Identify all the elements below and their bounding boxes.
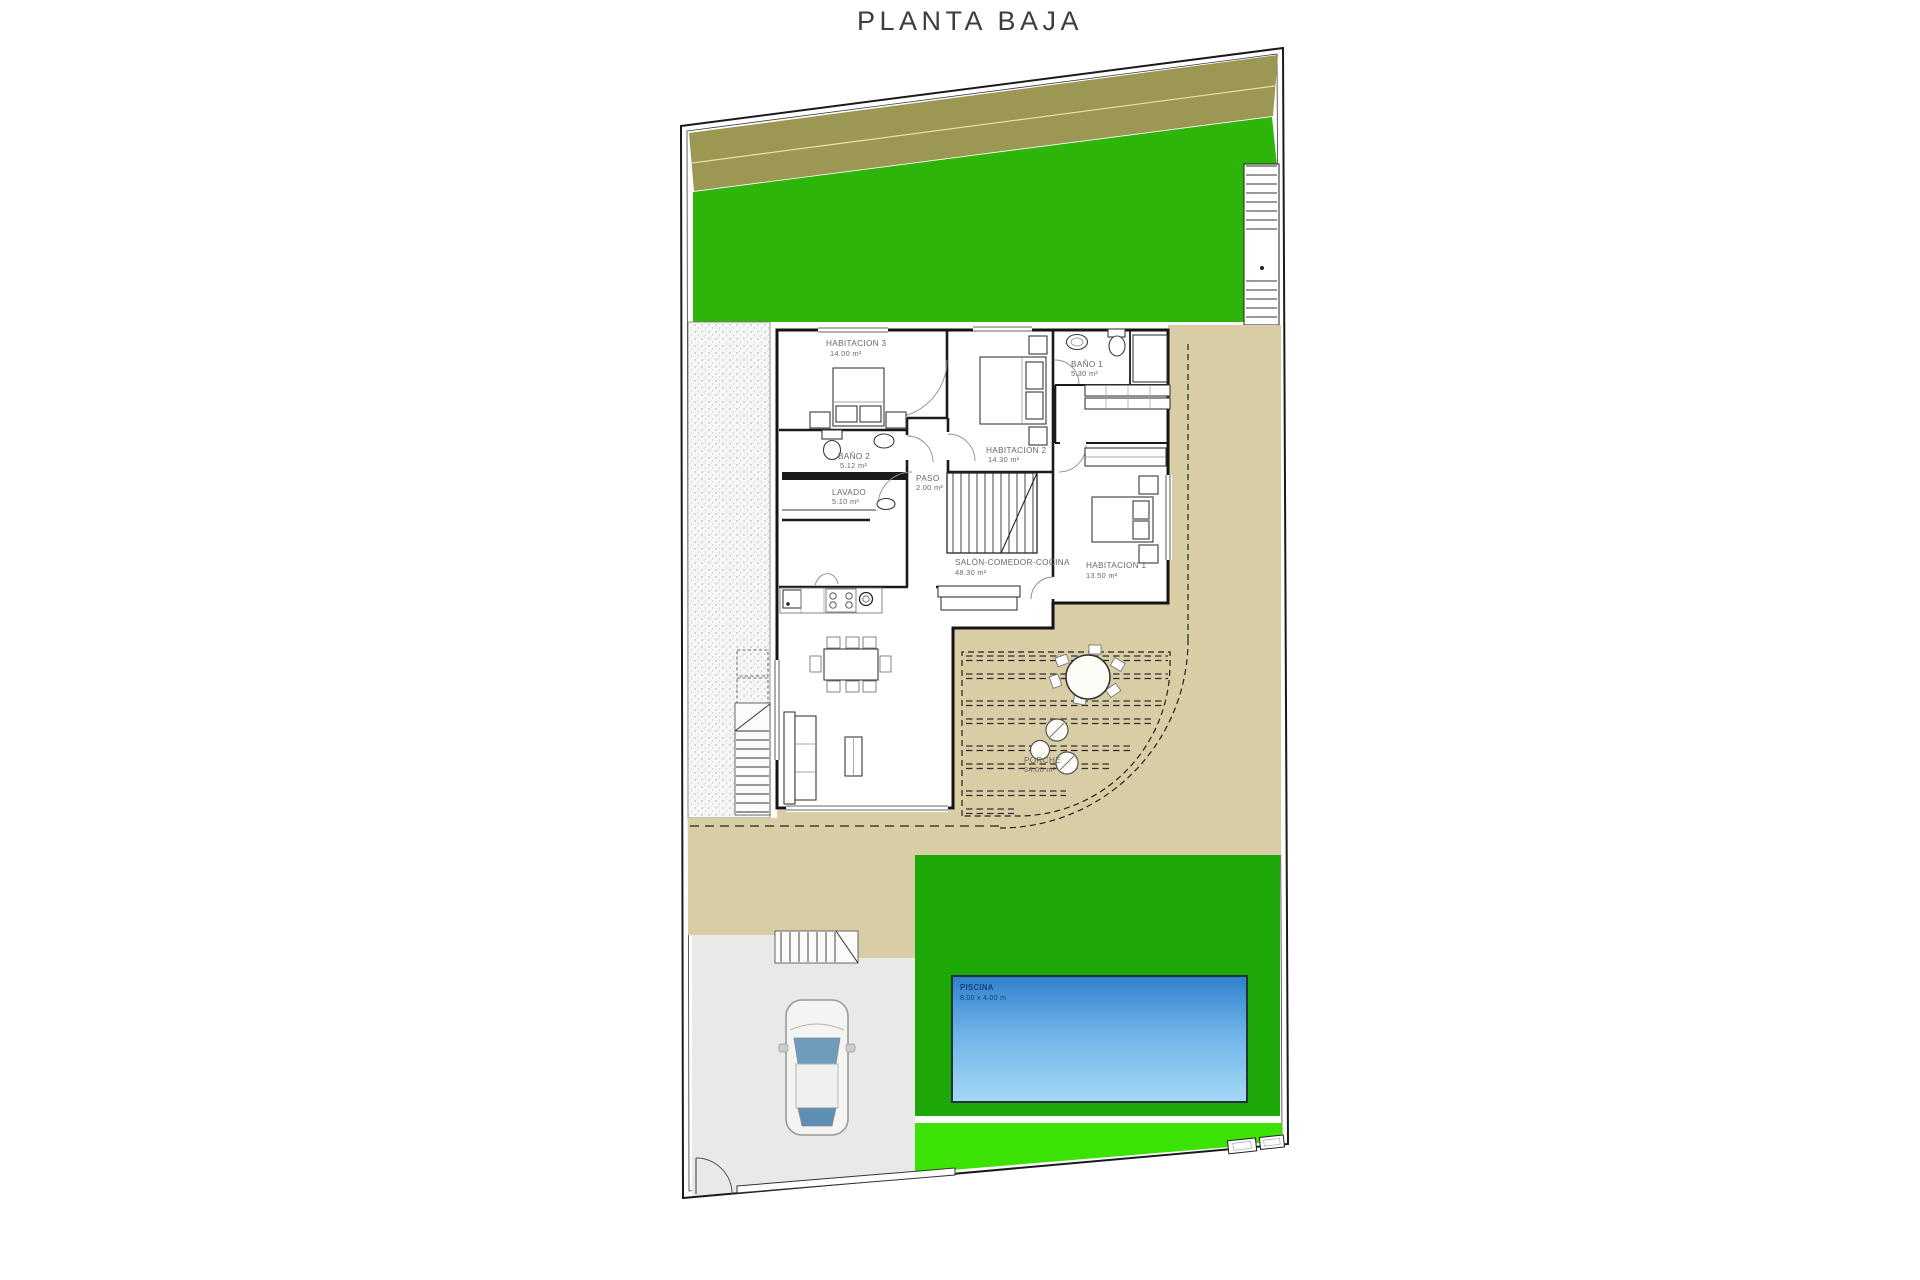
label-habitacion3-area: 14.00 m² xyxy=(830,349,862,358)
label-bano2-name: BAÑO 2 xyxy=(838,451,870,461)
label-habitacion1-name: HABITACION 1 xyxy=(1086,561,1147,570)
label-lavado-name: LAVADO xyxy=(832,488,866,497)
pool-label-name: PISCINA xyxy=(960,983,994,992)
label-porche-area: 34.00 m² xyxy=(1024,765,1056,774)
label-salon-area: 48.30 m² xyxy=(955,568,987,577)
label-paso-area: 2.00 m² xyxy=(916,483,943,492)
porch-round-table xyxy=(1066,655,1110,699)
car xyxy=(779,1000,855,1135)
stairs-top-right xyxy=(1244,164,1279,325)
label-lavado-area: 5.10 m² xyxy=(832,497,859,506)
label-porche-name: PORCHE xyxy=(1024,756,1061,765)
label-salon-name: SALÓN-COMEDOR-COCINA xyxy=(955,557,1070,567)
label-habitacion3-name: HABITACION 3 xyxy=(826,339,887,348)
swimming-pool: PISCINA 8.00 x 4.00 m xyxy=(952,976,1247,1102)
stairs-left xyxy=(735,703,770,815)
label-habitacion2-area: 14.30 m² xyxy=(988,455,1020,464)
kitchen-sink xyxy=(860,593,873,606)
floor-plan-svg: PLANTA BAJA PISCINA xyxy=(0,0,1920,1280)
label-paso-name: PASO xyxy=(916,474,940,483)
stairs-driveway xyxy=(775,931,858,963)
floor-plan-page: PLANTA BAJA PISCINA xyxy=(0,0,1920,1280)
label-habitacion1-area: 13.50 m² xyxy=(1086,571,1118,580)
pool-label-size: 8.00 x 4.00 m xyxy=(960,993,1006,1002)
label-bano1-name: BAÑO 1 xyxy=(1071,359,1103,369)
label-habitacion2-name: HABITACION 2 xyxy=(986,446,1047,455)
stairs-interior xyxy=(947,473,1037,553)
label-bano1-area: 5.30 m² xyxy=(1071,369,1098,378)
plan-title: PLANTA BAJA xyxy=(857,6,1083,36)
label-bano2-area: 5.12 m² xyxy=(840,461,867,470)
